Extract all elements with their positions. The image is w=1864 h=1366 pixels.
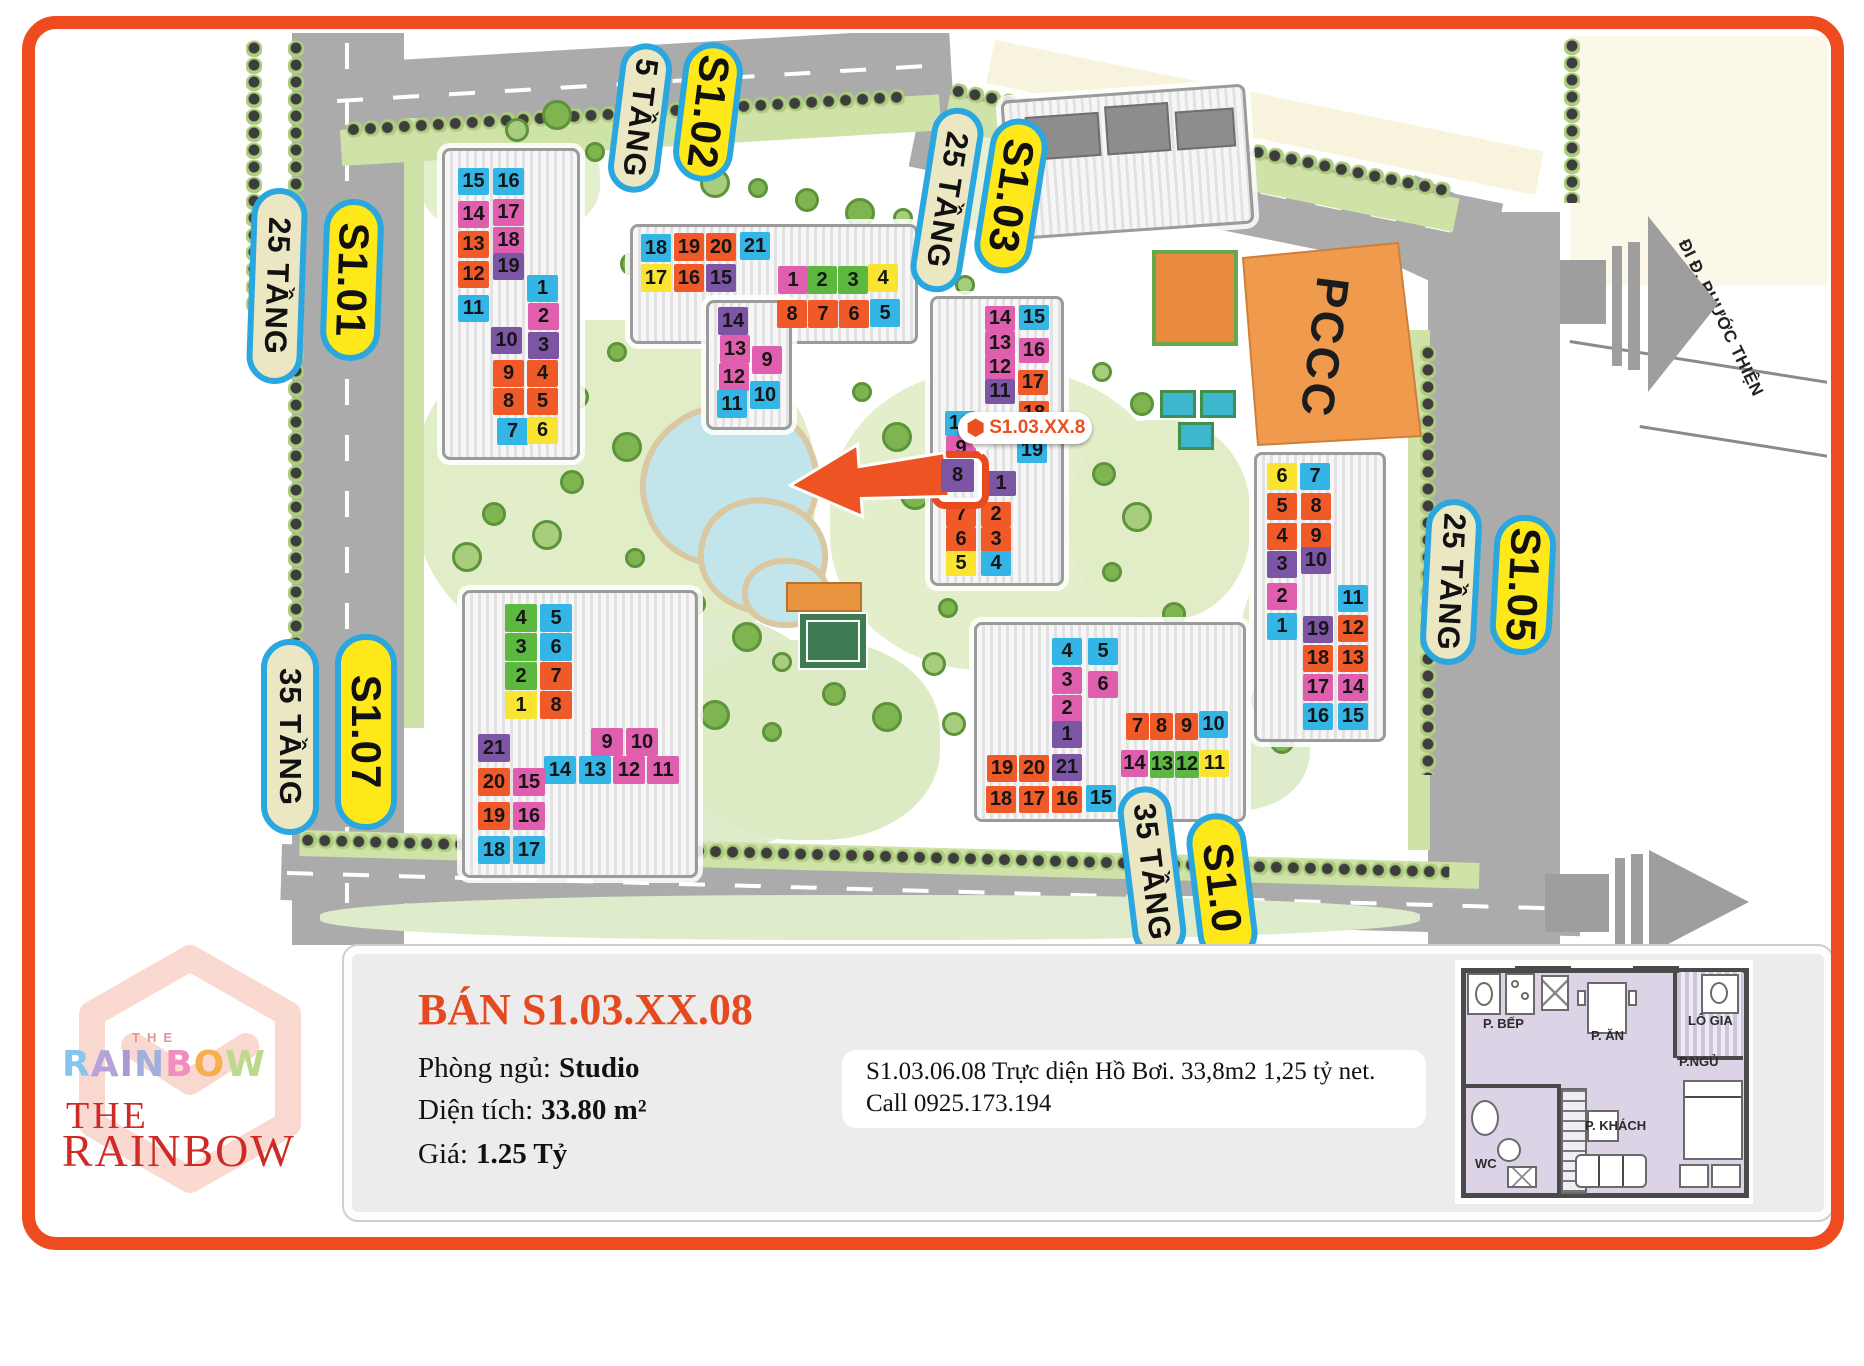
unit-cell: 3 [505,633,537,661]
area-value: 33.80 m² [541,1094,646,1126]
unit-cell: 14 [458,201,489,228]
pool-direction-arrow-icon [785,435,950,526]
unit-cell: 15 [1086,785,1116,812]
roof [1104,102,1171,155]
unit-cell: 1 [986,471,1016,496]
unit-cell: 1 [1052,721,1082,748]
area-label: Diện tích: [418,1094,533,1126]
unit-cell: 10 [750,381,780,409]
unit-cell: 4 [868,264,898,292]
tree-icon [700,700,730,730]
tree-icon [612,432,642,462]
unit-cell: 17 [513,836,545,864]
unit-cell: 5 [527,388,558,415]
basketball-court [1152,250,1238,346]
unit-cell: 3 [528,332,559,359]
tree-icon [922,652,946,676]
room-label: LÔ GIA [1688,1013,1733,1028]
building-label: S1.05 [1488,513,1557,656]
tree-icon [625,548,645,568]
tennis-shelter [786,582,862,612]
logo-letter: N [134,1044,165,1085]
unit-cell: 11 [647,756,679,784]
price-value: 1.25 Tỷ [476,1138,567,1170]
unit-cell: 8 [777,300,807,328]
unit-cell: 6 [839,300,869,328]
tennis-court [798,612,868,670]
unit-cell: 16 [1303,703,1333,730]
unit-cell: 14 [1121,750,1148,777]
unit-cell: 20 [706,233,736,261]
unit-cell: 6 [946,527,976,552]
unit-cell: 1 [527,275,558,302]
unit-cell: 12 [985,355,1015,380]
roof [1175,107,1237,150]
unit-cell: 13 [1338,645,1368,672]
tree-icon [852,382,872,402]
unit-cell: 4 [1052,638,1082,665]
unit-cell: 10 [491,327,522,354]
unit-cell: 13 [985,331,1015,356]
tree-icon [772,652,792,672]
listing-title: BÁN S1.03.XX.08 [418,984,753,1035]
unit-cell: 17 [1018,370,1048,395]
brand-hexagon-icon: ⬢ [966,417,985,439]
unit-cell: 19 [1303,616,1333,643]
unit-cell: 12 [613,756,645,784]
unit-cell: 3 [838,266,868,294]
unit-cell: 16 [493,168,524,195]
unit-cell: 8 [493,388,524,415]
unit-cell: 3 [1052,667,1082,694]
unit-cell: 8 [1150,713,1173,740]
tree-row [1564,38,1580,203]
room-label: P. BẾP [1483,1016,1524,1031]
unit-cell: 4 [505,604,537,632]
tree-icon [732,622,762,652]
unit-cell: 12 [458,261,489,288]
tree-icon [1102,562,1122,582]
note-line-2: Call 0925.173.194 [866,1090,1051,1118]
tree-icon [1130,392,1154,416]
unit-cell: 6 [1088,671,1118,698]
unit-cell: 11 [985,379,1015,404]
tree-icon [482,502,506,526]
unit-marker-label: S1.03.XX.8 [989,417,1085,439]
logo-letter: W [225,1044,266,1085]
bedrooms-label: Phòng ngủ: [418,1052,551,1084]
tree-icon [607,342,627,362]
tree-icon [1092,362,1112,382]
logo-letter: A [91,1044,120,1085]
unit-cell: 5 [946,551,976,576]
unit-cell: 5 [1267,493,1297,520]
unit-cell: 7 [540,662,572,690]
unit-cell: 1 [778,266,808,294]
unit-cell: 15 [1338,703,1368,730]
unit-cell: 9 [1301,523,1331,550]
boundary-line [1640,425,1827,459]
building-label: S1.01 [319,198,385,362]
unit-cell: 7 [1300,463,1330,490]
price-label: Giá: [418,1138,468,1170]
unit-cell: 5 [1088,638,1118,665]
unit-cell: 2 [1052,695,1082,722]
unit-cell: 2 [981,502,1011,527]
logo-rainbow-red: RAINBOW [62,1124,296,1177]
unit-cell: 8 [941,459,974,492]
unit-cell: 12 [1338,615,1368,642]
roadside-green [404,118,424,728]
unit-marker: ⬢ S1.03.XX.8 [958,412,1092,444]
floors-label: 35 TẦNG [261,639,319,835]
unit-cell: 6 [527,417,558,444]
unit-cell: 14 [1338,674,1368,701]
unit-cell: 11 [1200,750,1229,777]
green-area [1070,420,1250,620]
room-label: P.NGỦ [1679,1054,1719,1069]
tree-icon [452,542,482,572]
unit-cell: 10 [1199,711,1228,738]
unit-cell: 21 [740,232,770,260]
room-label: WC [1475,1156,1497,1171]
unit-cell: 1 [505,691,537,719]
mini-court [1178,422,1214,450]
bedrooms-row: Phòng ngủ:Studio [418,1052,640,1085]
unit-cell: 17 [493,199,524,226]
tree-icon [542,100,572,130]
unit-cell: 12 [1175,751,1199,778]
mini-court [1160,390,1196,418]
logo-the-small: THE [132,1030,179,1045]
logo-letter: I [120,1044,134,1085]
unit-cell: 16 [674,264,704,292]
tree-icon [762,722,782,742]
unit-cell: 12 [719,363,749,391]
tree-icon [505,118,529,142]
bed [1683,1080,1743,1160]
tree-icon [532,520,562,550]
unit-cell: 2 [505,662,537,690]
unit-cell: 5 [540,604,572,632]
mini-court [1200,390,1236,418]
unit-cell: 7 [1126,713,1149,740]
unit-cell: 6 [540,633,572,661]
unit-cell: 2 [528,303,559,330]
unit-cell: 3 [1267,551,1297,578]
tree-icon [822,682,846,706]
tree-icon [1092,462,1116,486]
unit-cell: 19 [493,253,524,280]
price-row: Giá:1.25 Tỷ [418,1138,567,1171]
unit-cell: 18 [493,227,524,254]
unit-cell: 11 [458,295,489,322]
unit-cell: 18 [478,836,510,864]
logo-letter: R [62,1044,91,1085]
unit-cell: 9 [752,346,782,374]
unit-cell: 19 [478,802,510,830]
unit-cell: 21 [1052,754,1082,781]
unit-cell: 19 [674,233,704,261]
floorplan: P. BẾPP. ĂNLÔ GIAP.NGỦP. KHÁCHWC [1455,960,1753,1204]
unit-cell: 9 [493,360,524,387]
logo-rainbow-colored: RAINBOW [62,1044,266,1085]
unit-cell: 16 [1019,338,1049,363]
unit-cell: 11 [1338,585,1368,612]
green-area [680,640,940,840]
exit-arrow-bottom-icon [1545,840,1755,945]
unit-cell: 18 [641,234,671,262]
building-label: S1.07 [335,634,397,830]
unit-cell: 5 [870,299,900,327]
unit-cell: 15 [706,264,736,292]
unit-cell: 14 [544,756,576,784]
unit-cell: 17 [1303,674,1333,701]
unit-cell: 10 [1301,547,1331,574]
unit-cell: 16 [513,802,545,830]
unit-cell: 15 [1019,305,1049,330]
unit-cell: 13 [458,231,489,258]
unit-cell: 8 [540,691,572,719]
unit-cell: 14 [985,306,1015,331]
tree-icon [938,598,958,618]
unit-cell: 7 [497,418,528,445]
unit-cell: 10 [626,728,658,756]
unit-cell: 20 [1019,755,1049,782]
note-line-1: S1.03.06.08 Trực diện Hồ Bơi. 33,8m2 1,2… [866,1058,1375,1086]
tree-icon [795,188,819,212]
unit-cell: 2 [1267,583,1297,610]
unit-cell: 17 [1019,786,1049,813]
unit-cell: 4 [981,551,1011,576]
unit-cell: 11 [717,390,747,418]
floors-label: 25 TẦNG [1419,498,1484,667]
unit-cell: 14 [718,307,748,335]
tree-icon [872,702,902,732]
unit-cell: 4 [1267,523,1297,550]
area-row: Diện tích:33.80 m² [418,1094,647,1127]
unit-cell: 9 [1175,713,1198,740]
site-map: PCCC ĐI Đ. PHƯỚC THIỆN ⬢ S1.03.XX.8 1516… [37,33,1827,945]
unit-cell: 2 [807,266,837,294]
unit-cell: 3 [981,527,1011,552]
unit-cell: 7 [808,300,838,328]
floors-label: 25 TẦNG [246,187,309,385]
unit-cell: 18 [986,786,1016,813]
room-label: P. ĂN [1591,1028,1624,1043]
unit-cell: 20 [478,768,510,796]
unit-cell: 19 [987,755,1017,782]
unit-cell: 6 [1267,463,1297,490]
unit-cell: 13 [720,335,750,363]
unit-cell: 8 [1301,493,1331,520]
unit-cell: 15 [458,168,489,195]
tree-icon [748,178,768,198]
unit-cell: 13 [1150,751,1174,778]
unit-cell: 17 [641,264,671,292]
exit-arrow-right-icon [1560,180,1740,400]
unit-cell: 15 [513,768,545,796]
logo-letter: O [194,1044,226,1085]
sofa [1575,1154,1647,1188]
unit-cell: 16 [1052,786,1082,813]
unit-cell: 21 [478,734,510,762]
unit-cell: 9 [591,728,623,756]
tree-icon [1122,502,1152,532]
unit-cell: 1 [1267,613,1297,640]
bedrooms-value: Studio [559,1052,640,1084]
logo-letter: B [165,1044,193,1085]
unit-cell: 13 [579,756,611,784]
room-label: P. KHÁCH [1585,1118,1646,1133]
tree-icon [585,142,605,162]
tree-icon [560,470,584,494]
unit-cell: 18 [1303,645,1333,672]
tree-icon [942,712,966,736]
unit-cell: 4 [527,360,558,387]
